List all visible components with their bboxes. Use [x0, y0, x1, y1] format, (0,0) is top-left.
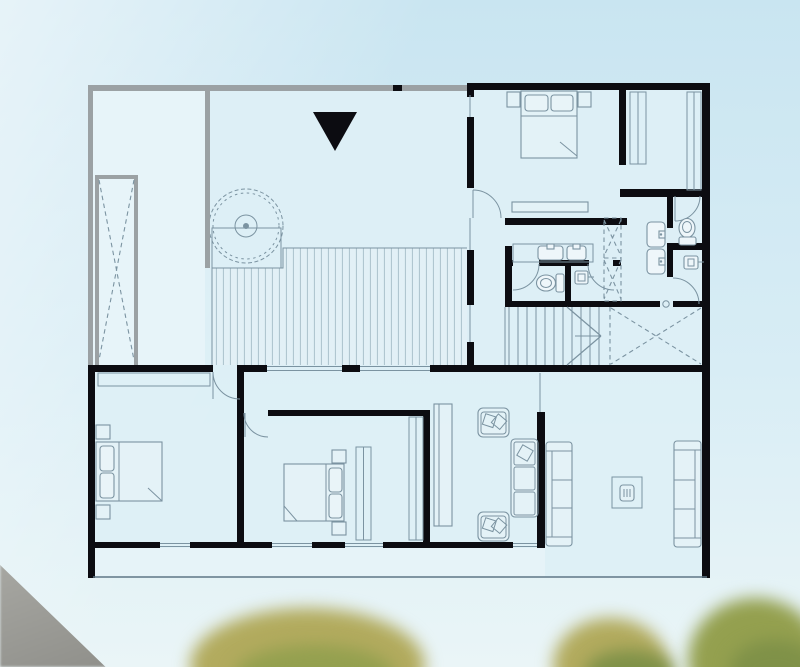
- floor-plan-svg: [0, 0, 800, 667]
- side-table: [332, 522, 346, 535]
- dresser: [512, 202, 588, 212]
- toilet-icon: [537, 274, 565, 292]
- sink-icon: [647, 249, 665, 274]
- sink-icon: [538, 244, 563, 260]
- nightstand: [578, 92, 591, 107]
- nightstand: [96, 425, 110, 439]
- sofa-icon: [511, 439, 538, 517]
- sink-icon: [647, 222, 665, 247]
- scene: [0, 0, 800, 667]
- bed-icon: [96, 442, 162, 501]
- nightstand: [507, 92, 520, 107]
- bed-icon: [284, 464, 344, 521]
- armchair-icon: [478, 512, 509, 541]
- sideboard: [434, 404, 452, 526]
- nightstand: [96, 505, 110, 519]
- toilet-icon: [679, 219, 696, 246]
- bed-icon: [521, 91, 577, 158]
- armchair-icon: [478, 408, 509, 437]
- side-table: [332, 450, 346, 463]
- sofa-icon: [546, 442, 572, 546]
- sofa-icon: [674, 441, 701, 547]
- sink-icon: [567, 244, 586, 260]
